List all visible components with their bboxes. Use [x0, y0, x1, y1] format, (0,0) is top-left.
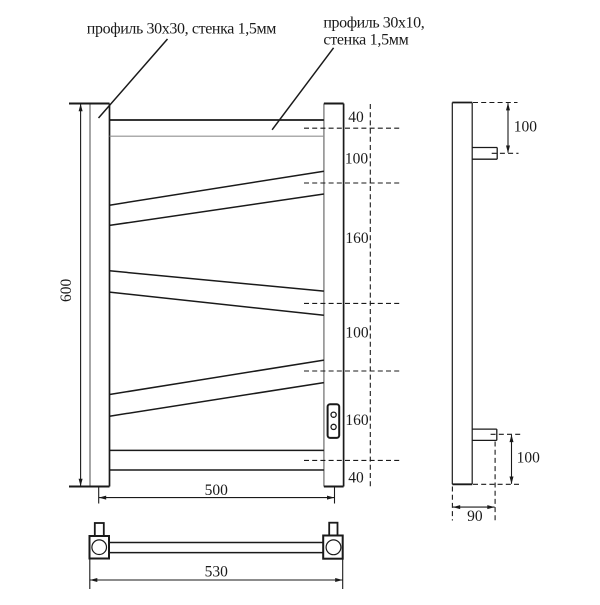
svg-text:600: 600 — [58, 279, 75, 303]
svg-text:профиль 30х10,: профиль 30х10, — [323, 15, 424, 32]
svg-text:100: 100 — [345, 151, 369, 168]
svg-text:стенка 1,5мм: стенка 1,5мм — [323, 31, 408, 48]
svg-text:160: 160 — [345, 230, 369, 247]
svg-text:530: 530 — [205, 564, 229, 581]
svg-text:90: 90 — [467, 508, 483, 525]
svg-text:100: 100 — [514, 119, 538, 136]
svg-text:100: 100 — [517, 450, 541, 467]
svg-text:500: 500 — [205, 482, 229, 499]
svg-text:профиль 30х30, стенка 1,5мм: профиль 30х30, стенка 1,5мм — [87, 21, 276, 38]
svg-text:40: 40 — [348, 470, 364, 487]
svg-text:100: 100 — [345, 324, 369, 341]
svg-text:40: 40 — [348, 109, 364, 126]
svg-text:160: 160 — [345, 412, 369, 429]
